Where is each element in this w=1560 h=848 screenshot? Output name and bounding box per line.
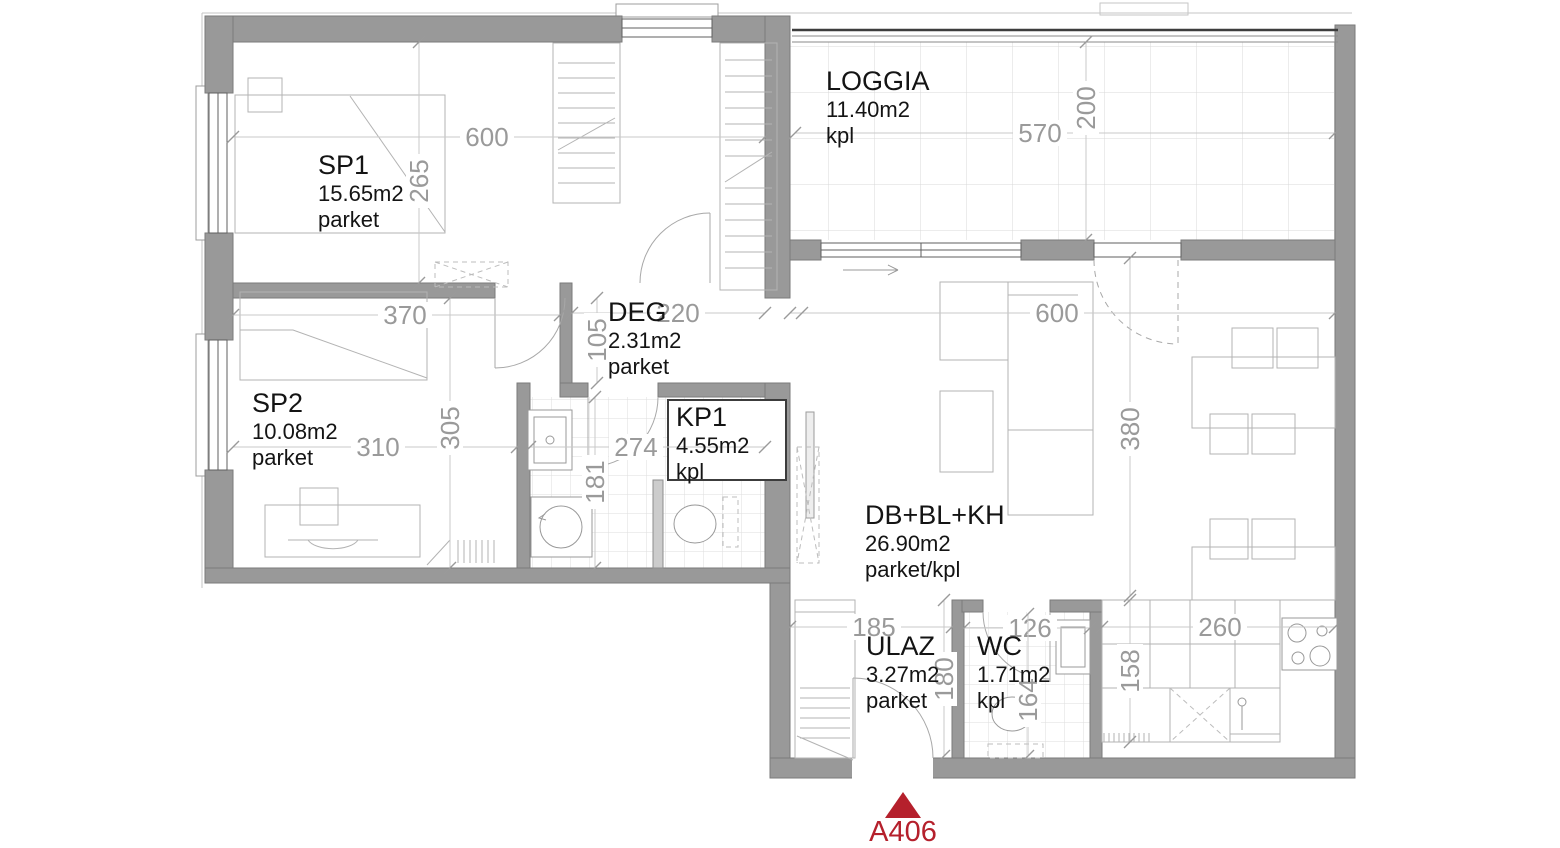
room-label-sp1: SP1 15.65m2 parket — [318, 150, 404, 232]
wall-left-b — [205, 233, 233, 340]
dim-sp1-depth: 265 — [404, 36, 434, 289]
door-swing-arc — [495, 298, 565, 368]
floor-hatch — [427, 540, 494, 565]
sp2-window — [209, 340, 227, 470]
unit-marker-triangle — [885, 792, 921, 818]
room-name: ULAZ — [866, 631, 939, 662]
wall-left-a — [205, 16, 233, 93]
room-name: KP1 — [676, 402, 749, 433]
monitor — [300, 488, 338, 525]
room-area: 3.27m2 — [866, 662, 939, 688]
entrance-opening — [852, 757, 933, 779]
room-label-loggia: LOGGIA 11.40m2 kpl — [826, 66, 930, 148]
closet-shelves — [795, 612, 855, 760]
svg-text:274: 274 — [614, 432, 657, 462]
bed-cover-line — [240, 330, 427, 378]
dim-living-width: 600 — [784, 298, 1341, 328]
floor-plan: 600 265 570 200 370 220 — [0, 0, 1560, 848]
room-area: 4.55m2 — [676, 433, 749, 459]
room-name: WC — [977, 631, 1050, 662]
room-label-living: DB+BL+KH 26.90m2 parket/kpl — [865, 500, 1005, 582]
wall-right — [1335, 25, 1355, 775]
dining-table-b — [1192, 547, 1335, 600]
sp1-window — [209, 93, 227, 233]
wall-wc-east — [1090, 600, 1102, 758]
room-area: 26.90m2 — [865, 531, 1005, 557]
loggia-balcony-door — [1094, 243, 1181, 344]
desk-chair — [308, 540, 358, 549]
svg-text:380: 380 — [1115, 407, 1145, 450]
svg-text:570: 570 — [1018, 118, 1061, 148]
svg-text:600: 600 — [1035, 298, 1078, 328]
room-floor: parket — [608, 354, 681, 380]
furniture-sp1 — [235, 43, 777, 290]
room-name: DB+BL+KH — [865, 500, 1005, 531]
wall-kp1-north — [658, 383, 765, 397]
door-frame — [1094, 243, 1181, 257]
room-floor: kpl — [676, 459, 749, 485]
toilet — [674, 505, 716, 543]
room-name: DEG — [608, 297, 681, 328]
dishwasher-cross — [1170, 688, 1230, 742]
room-area: 15.65m2 — [318, 181, 404, 207]
dim-sp1-width: 600 — [227, 122, 771, 152]
dim-sp2-depth: 305 — [435, 292, 465, 574]
room-floor: parket — [866, 688, 939, 714]
svg-text:600: 600 — [465, 122, 508, 152]
furniture-ulaz — [795, 600, 855, 760]
unit-marker-label: A406 — [858, 816, 948, 848]
room-label-wc: WC 1.71m2 kpl — [977, 631, 1050, 713]
wall-deg-stub — [560, 383, 588, 397]
room-floor: parket — [318, 207, 404, 233]
svg-text:181: 181 — [580, 460, 610, 503]
washbasin — [528, 410, 572, 470]
room-floor: kpl — [977, 688, 1050, 714]
sp2-door — [495, 298, 565, 368]
wall-living-west — [770, 583, 790, 758]
wall-bottom-right-a — [770, 758, 853, 778]
svg-text:370: 370 — [383, 300, 426, 330]
wardrobe-left — [553, 43, 620, 203]
wall-sp1-sp2 — [233, 283, 495, 298]
sp1-door — [640, 213, 710, 283]
svg-text:310: 310 — [356, 432, 399, 462]
room-name: SP1 — [318, 150, 404, 181]
room-label-kp1: KP1 4.55m2 kpl — [676, 402, 749, 484]
room-floor: kpl — [826, 123, 930, 149]
radiator-hatch — [1104, 733, 1149, 742]
wall-loggia-pier-c — [1181, 240, 1338, 260]
door-swing-arc — [1094, 260, 1178, 344]
room-area: 10.08m2 — [252, 419, 338, 445]
chair — [1210, 414, 1248, 454]
chair — [1232, 328, 1273, 368]
room-floor: parket — [252, 445, 338, 471]
wall-bottom-left — [205, 568, 790, 583]
closet-outline — [795, 600, 855, 758]
room-label-deg: DEG 2.31m2 parket — [608, 297, 681, 379]
sink-faucet — [1238, 698, 1246, 706]
living-sliding-window — [821, 243, 1021, 275]
room-name: LOGGIA — [826, 66, 930, 97]
top-window-sill — [616, 4, 718, 17]
svg-text:260: 260 — [1198, 612, 1241, 642]
room-area: 2.31m2 — [608, 328, 681, 354]
wall-wc-north-b — [1050, 600, 1102, 612]
dim-sp2-top-width: 370 — [227, 300, 566, 330]
coffee-table — [940, 391, 993, 472]
room-area: 11.40m2 — [826, 97, 930, 123]
room-area: 1.71m2 — [977, 662, 1050, 688]
dim-living-depth: 380 — [1115, 252, 1145, 602]
chair — [1252, 519, 1295, 559]
room-label-ulaz: ULAZ 3.27m2 parket — [866, 631, 939, 713]
wall-loggia-pier-a — [790, 240, 821, 260]
sp1-window-sill — [196, 86, 208, 240]
room-floor: parket/kpl — [865, 557, 1005, 583]
chair — [1277, 328, 1318, 368]
room-name: SP2 — [252, 388, 338, 419]
floor-plan-drawing: 600 265 570 200 370 220 — [0, 0, 1560, 848]
svg-text:305: 305 — [435, 406, 465, 449]
door-swing-arc — [640, 213, 710, 283]
chair — [1210, 519, 1248, 559]
svg-text:200: 200 — [1071, 86, 1101, 129]
chair — [1252, 414, 1295, 454]
wall-left-c — [205, 470, 233, 583]
svg-text:265: 265 — [404, 159, 434, 202]
room-label-sp2: SP2 10.08m2 parket — [252, 388, 338, 470]
wall-wc-north-a — [962, 600, 983, 612]
sink-unit — [1230, 688, 1280, 734]
desk — [265, 505, 420, 557]
wall-deg-west — [560, 283, 572, 397]
slide-direction-arrow — [843, 265, 898, 275]
sp2-window-sill — [196, 334, 208, 476]
kp1-partition — [653, 480, 663, 568]
loggia-railing — [792, 30, 1338, 42]
wall-top-left-a — [218, 16, 622, 42]
stove — [1282, 618, 1337, 670]
sp1-top-window — [622, 19, 712, 37]
wall-bottom-right-b — [932, 758, 1355, 778]
svg-text:158: 158 — [1115, 649, 1145, 692]
